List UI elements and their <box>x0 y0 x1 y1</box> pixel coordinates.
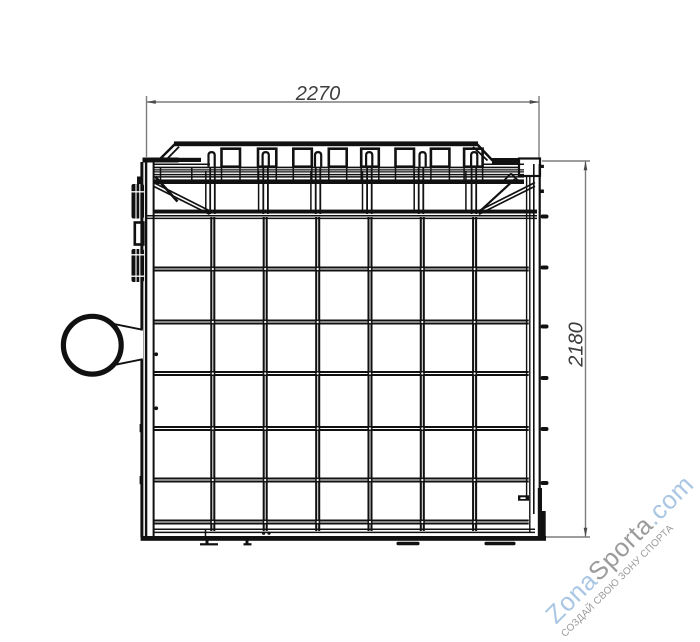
svg-text:2180: 2180 <box>566 322 588 368</box>
svg-text:2270: 2270 <box>295 83 341 105</box>
